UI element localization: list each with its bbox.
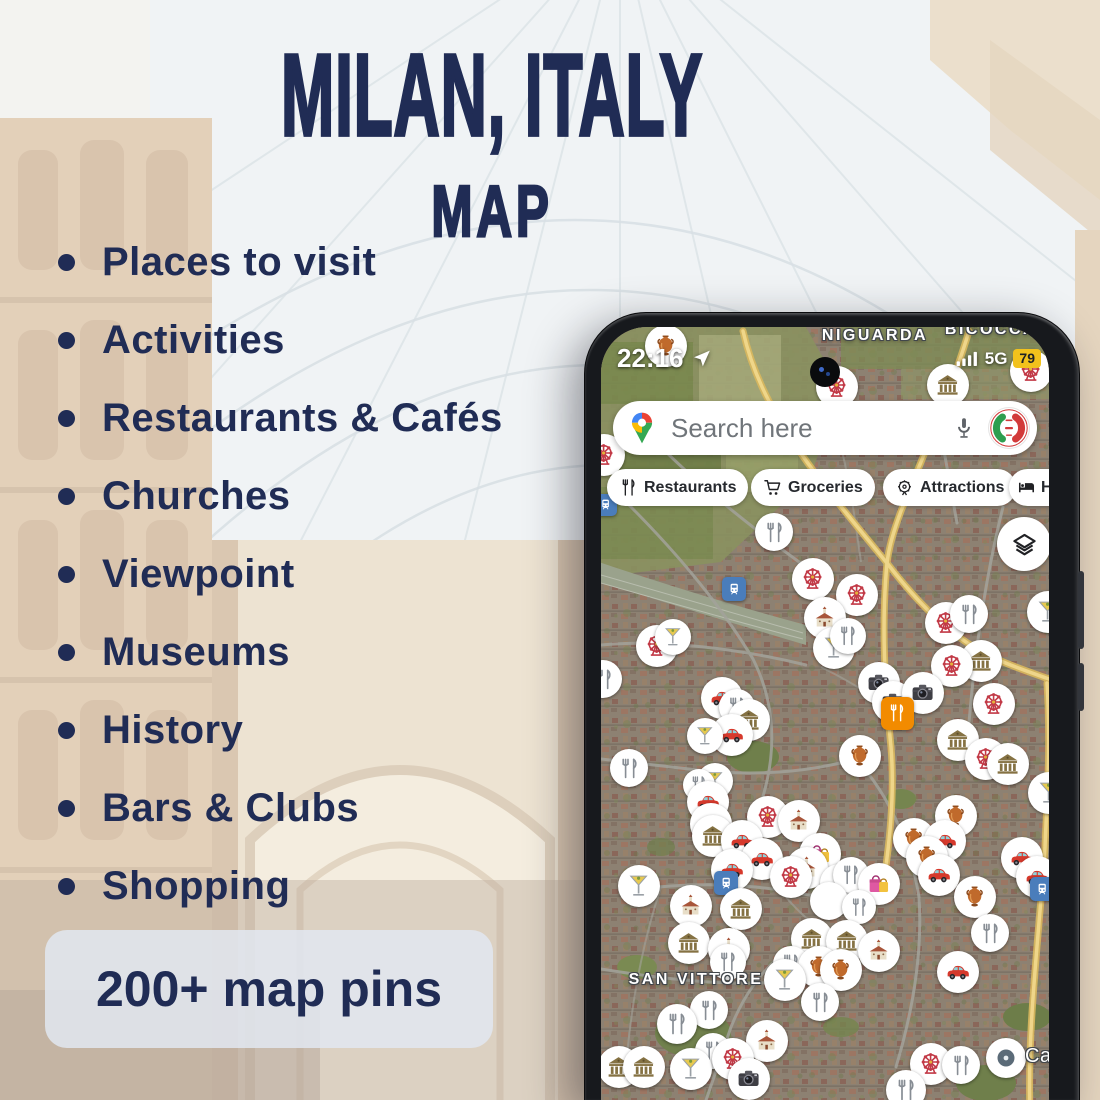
feature-item: Bars & Clubs (58, 769, 503, 847)
bullet-icon (58, 566, 75, 583)
map-pin-ferris[interactable] (973, 683, 1015, 725)
map-pin-martini[interactable] (687, 718, 723, 754)
map-pin-fork[interactable] (830, 618, 866, 654)
chip-restaurants[interactable]: Restaurants (607, 469, 748, 506)
map-pin-fork[interactable] (601, 660, 622, 698)
search-bar[interactable]: Search here (613, 401, 1037, 455)
poster-title: MILAN, ITALY (98, 38, 885, 154)
map-pin-church[interactable] (670, 885, 712, 927)
feature-list: Places to visit Activities Restaurants &… (58, 223, 503, 925)
map-label: NIGUARDA (822, 327, 928, 345)
category-chips: Restaurants Groceries (601, 469, 1049, 507)
map-pin-museum[interactable] (668, 922, 710, 964)
chip-label: Hotels (1041, 479, 1049, 497)
map-pin-museum[interactable] (987, 743, 1029, 785)
map-label: SAN VITTORE (629, 971, 764, 989)
map-pin-amphora[interactable] (645, 327, 687, 367)
map-pin-ferris[interactable] (792, 558, 834, 600)
map-pin-car[interactable] (918, 854, 960, 896)
map-pin-ferris[interactable] (770, 856, 812, 898)
map-pin-martini[interactable] (1028, 772, 1049, 814)
power-button[interactable] (1078, 663, 1084, 711)
chip-groceries[interactable]: Groceries (751, 469, 875, 506)
camera-punch-hole (810, 357, 840, 387)
map-pin-martini[interactable] (655, 619, 691, 655)
chip-label: Groceries (788, 479, 863, 497)
account-avatar[interactable] (989, 408, 1029, 448)
phone-mockup: NIGUARDABICOCCASAN VITTORECasc 22:16 (584, 312, 1080, 1100)
mic-icon[interactable] (951, 415, 977, 441)
feature-item: History (58, 691, 503, 769)
bullet-icon (58, 722, 75, 739)
map-pin-car[interactable] (937, 951, 979, 993)
search-input[interactable]: Search here (671, 413, 951, 444)
map-pin-fork[interactable] (971, 914, 1009, 952)
map-pin-camera[interactable] (728, 1058, 770, 1100)
map-pin-fork[interactable] (755, 513, 793, 551)
bullet-icon (58, 410, 75, 427)
map-pin-fork[interactable] (842, 890, 876, 924)
chip-label: Attractions (920, 479, 1004, 497)
map-pin-amphora[interactable] (839, 735, 881, 777)
map-pin-martini[interactable] (618, 865, 660, 907)
bed-icon (1017, 478, 1036, 497)
feature-item: Places to visit (58, 223, 503, 301)
bullet-icon (58, 644, 75, 661)
phone-screen[interactable]: NIGUARDABICOCCASAN VITTORECasc 22:16 (601, 327, 1049, 1100)
chip-hotels[interactable]: Hotels (1009, 469, 1049, 506)
bullet-icon (58, 800, 75, 817)
fork-knife-icon (619, 478, 638, 497)
map-pin-martini[interactable] (670, 1048, 712, 1090)
map-pin-orangesq[interactable] (881, 697, 914, 730)
map-label: BICOCCA (945, 327, 1037, 339)
chip-label: Restaurants (644, 479, 736, 497)
map-pin-martini[interactable] (1027, 591, 1049, 633)
feature-item: Restaurants & Cafés (58, 379, 503, 457)
cart-icon (763, 478, 782, 497)
map-pin-locdot[interactable] (986, 1038, 1026, 1078)
poster-canvas: MILAN, ITALY MAP Places to visit Activit… (0, 0, 1100, 1100)
map-pin-ferris[interactable] (1010, 350, 1049, 392)
feature-item: Shopping (58, 847, 503, 925)
chip-attractions[interactable]: Attractions (883, 469, 1016, 506)
map-pin-amphora[interactable] (954, 876, 996, 918)
layers-icon (1011, 531, 1038, 558)
pins-badge: 200+ map pins (45, 930, 493, 1048)
map-pin-fork[interactable] (950, 595, 988, 633)
map-pin-museum[interactable] (927, 364, 969, 406)
map-pin-martini[interactable] (764, 959, 806, 1001)
bullet-icon (58, 254, 75, 271)
feature-item: Churches (58, 457, 503, 535)
google-maps-logo-icon (629, 411, 655, 445)
volume-button[interactable] (1078, 571, 1084, 649)
feature-item: Viewpoint (58, 535, 503, 613)
map-pin-church[interactable] (858, 930, 900, 972)
bullet-icon (58, 332, 75, 349)
map-pin-fork[interactable] (942, 1046, 980, 1084)
feature-item: Activities (58, 301, 503, 379)
map-pin-museum[interactable] (720, 888, 762, 930)
pins-badge-label: 200+ map pins (96, 960, 442, 1018)
map-label: Casc (1025, 1045, 1049, 1068)
feature-item: Museums (58, 613, 503, 691)
map-pin-transit[interactable] (722, 577, 746, 601)
map-pin-transit[interactable] (1030, 877, 1049, 901)
layers-button[interactable] (997, 517, 1049, 571)
map-pin-museum[interactable] (623, 1046, 665, 1088)
bullet-icon (58, 488, 75, 505)
map-pin-fork[interactable] (657, 1004, 697, 1044)
bullet-icon (58, 878, 75, 895)
italy-logo-icon (989, 408, 1029, 448)
map-pin-fork[interactable] (610, 749, 648, 787)
map-pin-fork[interactable] (801, 983, 839, 1021)
ferris-wheel-icon (895, 478, 914, 497)
